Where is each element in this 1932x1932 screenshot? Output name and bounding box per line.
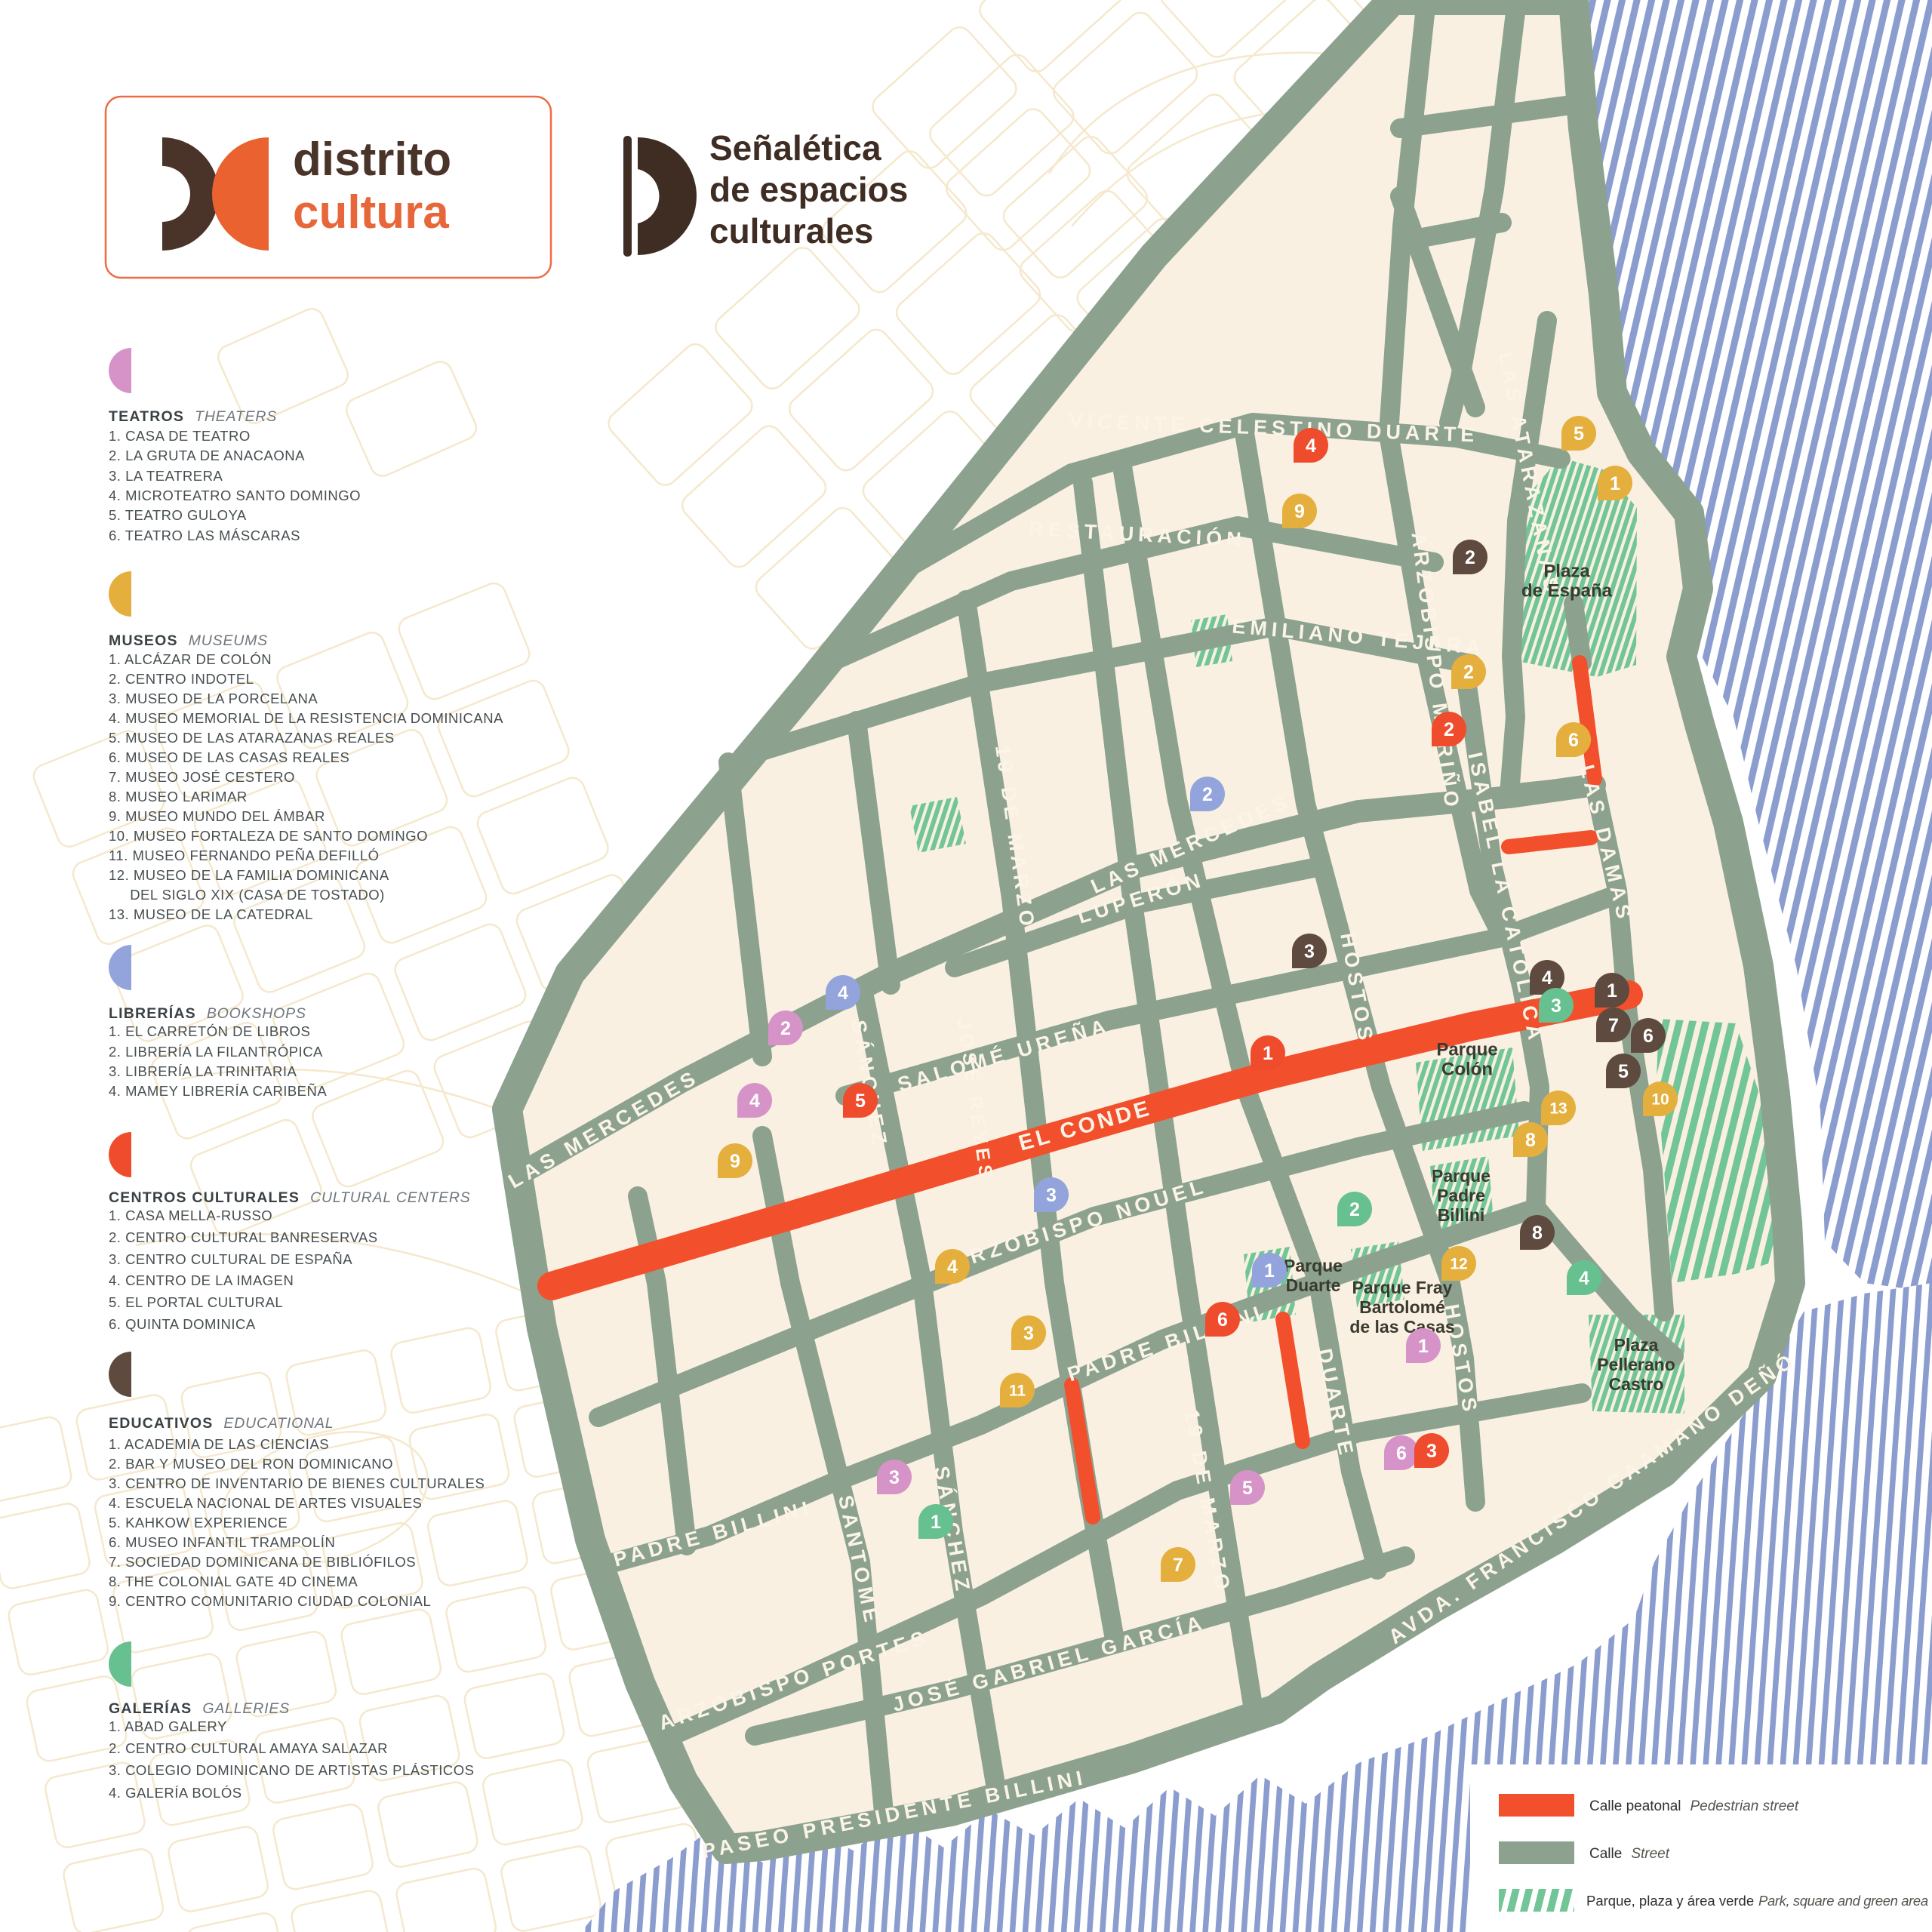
- svg-text:3. CENTRO DE INVENTARIO DE BIE: 3. CENTRO DE INVENTARIO DE BIENES CULTUR…: [109, 1475, 485, 1491]
- svg-text:3: 3: [1304, 941, 1315, 962]
- svg-text:Parque, plaza y área verde: Parque, plaza y área verde: [1586, 1893, 1754, 1909]
- svg-text:5: 5: [855, 1091, 866, 1112]
- svg-text:3: 3: [889, 1467, 900, 1488]
- svg-text:3. LIBRERÍA LA TRINITARIA: 3. LIBRERÍA LA TRINITARIA: [109, 1063, 297, 1079]
- svg-text:3: 3: [1046, 1185, 1057, 1206]
- svg-text:13. MUSEO DE LA CATEDRAL: 13. MUSEO DE LA CATEDRAL: [109, 906, 313, 922]
- svg-text:3: 3: [1426, 1441, 1437, 1462]
- svg-text:2: 2: [1349, 1199, 1360, 1220]
- svg-text:3: 3: [1023, 1323, 1034, 1344]
- svg-text:9: 9: [1294, 501, 1305, 522]
- svg-text:4: 4: [947, 1257, 958, 1278]
- svg-text:4: 4: [838, 983, 848, 1004]
- svg-text:2: 2: [1463, 662, 1474, 683]
- svg-text:1. CASA MELLA-RUSSO: 1. CASA MELLA-RUSSO: [109, 1207, 272, 1223]
- svg-text:5: 5: [1574, 423, 1584, 445]
- svg-text:Castro: Castro: [1609, 1374, 1664, 1394]
- svg-text:3. MUSEO DE LA PORCELANA: 3. MUSEO DE LA PORCELANA: [109, 691, 318, 706]
- svg-text:4. MICROTEATRO SANTO DOMINGO: 4. MICROTEATRO SANTO DOMINGO: [109, 488, 361, 503]
- svg-text:3: 3: [1551, 995, 1561, 1017]
- svg-text:1. ACADEMIA DE LAS CIENCIAS: 1. ACADEMIA DE LAS CIENCIAS: [109, 1436, 329, 1452]
- svg-text:5. KAHKOW EXPERIENCE: 5. KAHKOW EXPERIENCE: [109, 1515, 288, 1531]
- svg-text:9. MUSEO MUNDO DEL ÁMBAR: 9. MUSEO MUNDO DEL ÁMBAR: [109, 808, 325, 824]
- svg-text:6. TEATRO LAS MÁSCARAS: 6. TEATRO LAS MÁSCARAS: [109, 528, 300, 543]
- svg-text:5. EL PORTAL CULTURAL: 5. EL PORTAL CULTURAL: [109, 1294, 283, 1310]
- svg-text:4: 4: [1579, 1268, 1589, 1289]
- svg-text:3. LA TEATRERA: 3. LA TEATRERA: [109, 468, 223, 484]
- svg-text:1: 1: [1264, 1260, 1275, 1281]
- svg-text:2: 2: [1465, 547, 1475, 568]
- svg-text:Calle peatonalPedestrian stree: Calle peatonalPedestrian street: [1589, 1798, 1799, 1814]
- svg-text:5. MUSEO DE LAS ATARAZANAS REA: 5. MUSEO DE LAS ATARAZANAS REALES: [109, 730, 395, 746]
- svg-text:1: 1: [1610, 473, 1620, 494]
- svg-text:1: 1: [931, 1512, 941, 1533]
- svg-text:Duarte: Duarte: [1286, 1275, 1341, 1295]
- svg-text:Bartolomé: Bartolomé: [1359, 1297, 1445, 1317]
- svg-text:2. BAR Y MUSEO DEL RON DOMINIC: 2. BAR Y MUSEO DEL RON DOMINICANO: [109, 1456, 393, 1472]
- svg-text:8. THE COLONIAL GATE 4D CINEMA: 8. THE COLONIAL GATE 4D CINEMA: [109, 1574, 358, 1589]
- svg-text:7. MUSEO JOSÉ CESTERO: 7. MUSEO JOSÉ CESTERO: [109, 769, 295, 785]
- svg-text:Parque: Parque: [1284, 1256, 1343, 1275]
- svg-text:4. MUSEO MEMORIAL DE LA RESIST: 4. MUSEO MEMORIAL DE LA RESISTENCIA DOMI…: [109, 710, 503, 726]
- svg-text:1: 1: [1263, 1043, 1273, 1064]
- svg-text:6. MUSEO INFANTIL TRAMPOLÍN: 6. MUSEO INFANTIL TRAMPOLÍN: [109, 1534, 335, 1550]
- svg-text:10. MUSEO FORTALEZA DE SANTO D: 10. MUSEO FORTALEZA DE SANTO DOMINGO: [109, 828, 428, 844]
- svg-text:7. SOCIEDAD DOMINICANA DE BIBL: 7. SOCIEDAD DOMINICANA DE BIBLIÓFILOS: [109, 1554, 416, 1570]
- svg-text:2: 2: [1202, 784, 1213, 805]
- svg-text:Parque Fray: Parque Fray: [1352, 1278, 1453, 1297]
- svg-text:5. TEATRO GULOYA: 5. TEATRO GULOYA: [109, 507, 247, 523]
- svg-text:6: 6: [1568, 730, 1579, 751]
- svg-text:9. CENTRO COMUNITARIO CIUDAD C: 9. CENTRO COMUNITARIO CIUDAD COLONIAL: [109, 1593, 431, 1609]
- svg-text:2: 2: [1444, 719, 1454, 740]
- svg-text:1. CASA DE TEATRO: 1. CASA DE TEATRO: [109, 428, 251, 444]
- svg-text:4: 4: [1542, 968, 1552, 989]
- svg-text:6. QUINTA DOMINICA: 6. QUINTA DOMINICA: [109, 1316, 256, 1332]
- svg-text:2. CENTRO CULTURAL AMAYA SALAZ: 2. CENTRO CULTURAL AMAYA SALAZAR: [109, 1740, 388, 1756]
- svg-text:LIBRERÍASBOOKSHOPS: LIBRERÍASBOOKSHOPS: [109, 1004, 306, 1022]
- svg-text:Colón: Colón: [1441, 1060, 1493, 1080]
- svg-text:4. MAMEY LIBRERÍA CARIBEÑA: 4. MAMEY LIBRERÍA CARIBEÑA: [109, 1083, 327, 1099]
- svg-text:4. ESCUELA NACIONAL DE ARTES V: 4. ESCUELA NACIONAL DE ARTES VISUALES: [109, 1495, 422, 1511]
- svg-text:4: 4: [749, 1091, 760, 1112]
- svg-text:MUSEOSMUSEUMS: MUSEOSMUSEUMS: [109, 632, 268, 649]
- svg-text:cultura: cultura: [293, 186, 449, 238]
- svg-text:5: 5: [1242, 1478, 1253, 1499]
- svg-text:1. ABAD GALERY: 1. ABAD GALERY: [109, 1718, 227, 1734]
- svg-text:4. CENTRO DE LA IMAGEN: 4. CENTRO DE LA IMAGEN: [109, 1272, 294, 1288]
- svg-text:2: 2: [780, 1018, 791, 1039]
- svg-text:6. MUSEO DE LAS CASAS REALES: 6. MUSEO DE LAS CASAS REALES: [109, 749, 349, 765]
- svg-text:Señalética: Señalética: [709, 128, 881, 168]
- svg-text:5: 5: [1618, 1061, 1629, 1082]
- svg-text:4: 4: [1306, 435, 1316, 457]
- svg-text:12: 12: [1450, 1256, 1467, 1273]
- svg-text:de España: de España: [1521, 581, 1613, 601]
- svg-text:1: 1: [1418, 1336, 1429, 1357]
- svg-text:2. LIBRERÍA LA FILANTRÓPICA: 2. LIBRERÍA LA FILANTRÓPICA: [109, 1044, 323, 1060]
- svg-text:6: 6: [1643, 1026, 1654, 1047]
- svg-text:Plaza: Plaza: [1543, 561, 1590, 582]
- svg-text:4. GALERÍA BOLÓS: 4. GALERÍA BOLÓS: [109, 1785, 242, 1801]
- svg-text:12. MUSEO DE LA FAMILIA DOMINI: 12. MUSEO DE LA FAMILIA DOMINICANA: [109, 867, 389, 883]
- svg-text:Plaza: Plaza: [1614, 1335, 1659, 1355]
- svg-text:8. MUSEO LARIMAR: 8. MUSEO LARIMAR: [109, 789, 248, 804]
- svg-text:Padre: Padre: [1437, 1186, 1485, 1205]
- svg-text:2. CENTRO INDOTEL: 2. CENTRO INDOTEL: [109, 671, 254, 687]
- svg-text:de espacios: de espacios: [709, 170, 908, 209]
- svg-text:1. EL CARRETÓN DE LIBROS: 1. EL CARRETÓN DE LIBROS: [109, 1023, 310, 1039]
- svg-text:distrito: distrito: [293, 134, 451, 186]
- svg-text:1. ALCÁZAR DE COLÓN: 1. ALCÁZAR DE COLÓN: [109, 651, 272, 667]
- svg-text:11: 11: [1009, 1383, 1026, 1400]
- svg-text:6: 6: [1217, 1309, 1228, 1331]
- svg-text:culturales: culturales: [709, 211, 873, 251]
- svg-text:CENTROS CULTURALESCULTURAL CEN: CENTROS CULTURALESCULTURAL CENTERS: [109, 1189, 471, 1206]
- svg-text:Parque: Parque: [1436, 1040, 1497, 1060]
- svg-text:2. CENTRO CULTURAL BANRESERVAS: 2. CENTRO CULTURAL BANRESERVAS: [109, 1229, 378, 1245]
- svg-text:7: 7: [1173, 1555, 1183, 1576]
- svg-text:13: 13: [1549, 1100, 1567, 1118]
- svg-text:Pellerano: Pellerano: [1597, 1355, 1675, 1374]
- svg-text:11. MUSEO FERNANDO PEÑA DEFILL: 11. MUSEO FERNANDO PEÑA DEFILLÓ: [109, 848, 380, 863]
- svg-text:6: 6: [1396, 1443, 1407, 1464]
- svg-text:8: 8: [1525, 1130, 1536, 1151]
- svg-text:Parque: Parque: [1432, 1166, 1491, 1186]
- svg-text:10: 10: [1651, 1091, 1669, 1109]
- svg-text:2. LA GRUTA DE ANACAONA: 2. LA GRUTA DE ANACAONA: [109, 448, 305, 463]
- svg-text:Park, square and green area: Park, square and green area: [1758, 1893, 1928, 1909]
- svg-text:7: 7: [1608, 1015, 1619, 1036]
- svg-text:3. CENTRO CULTURAL DE ESPAÑA: 3. CENTRO CULTURAL DE ESPAÑA: [109, 1251, 352, 1267]
- svg-text:DEL SIGLO XIX (CASA DE TOSTADO: DEL SIGLO XIX (CASA DE TOSTADO): [109, 887, 385, 903]
- svg-text:3. COLEGIO DOMINICANO DE ARTIS: 3. COLEGIO DOMINICANO DE ARTISTAS PLÁSTI…: [109, 1762, 474, 1778]
- svg-text:8: 8: [1532, 1223, 1543, 1244]
- svg-text:9: 9: [730, 1151, 740, 1172]
- svg-text:Billini: Billini: [1438, 1205, 1485, 1225]
- svg-text:1: 1: [1607, 980, 1617, 1001]
- svg-text:de las Casas: de las Casas: [1349, 1317, 1454, 1337]
